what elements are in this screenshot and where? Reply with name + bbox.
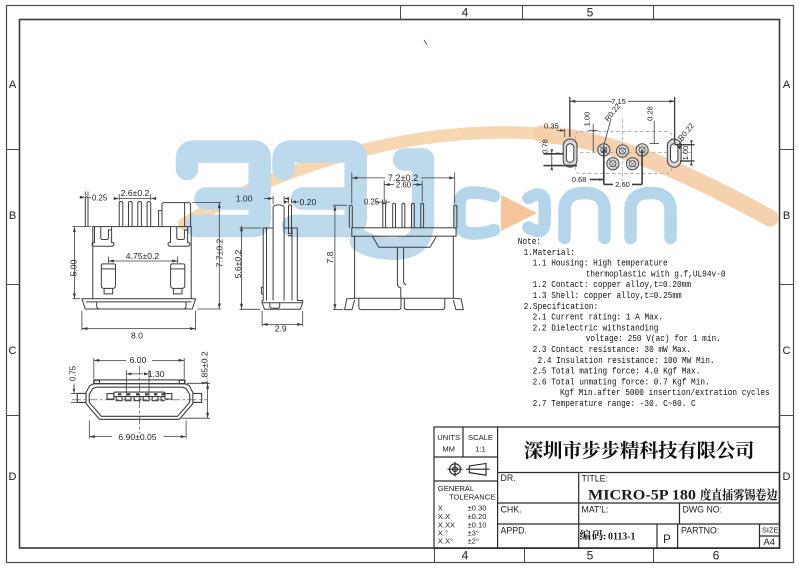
svg-text:B: B [783, 210, 790, 222]
svg-text:2.5 Total mating force: 4.0 Kg: 2.5 Total mating force: 4.0 Kgf Max. [533, 366, 701, 377]
svg-text:5: 5 [587, 549, 594, 563]
svg-text:1.30: 1.30 [148, 369, 165, 379]
svg-text:2.Specification:: 2.Specification: [524, 301, 599, 312]
svg-text:1.00: 1.00 [236, 193, 253, 203]
svg-text:0.35: 0.35 [544, 122, 559, 131]
svg-text:2.9: 2.9 [275, 324, 287, 334]
svg-text:D: D [783, 471, 791, 483]
svg-text:0.75: 0.75 [69, 365, 78, 381]
svg-text:4: 4 [462, 6, 469, 20]
svg-text:CHK.: CHK. [501, 505, 522, 515]
svg-text:DWG NO:: DWG NO: [683, 505, 723, 515]
svg-text:0.68: 0.68 [572, 175, 587, 184]
svg-text:0.25: 0.25 [364, 198, 380, 207]
svg-text:SIZE: SIZE [762, 526, 778, 535]
svg-text:1.2 Contact: copper alloy,t=0.: 1.2 Contact: copper alloy,t=0.20mm [533, 279, 692, 290]
svg-text:P: P [663, 534, 671, 546]
svg-text:2.7 Temperature range: -30. C~: 2.7 Temperature range: -30. C~80. C [533, 398, 696, 409]
svg-text:TOLERANCE: TOLERANCE [449, 493, 495, 502]
svg-text:8.0: 8.0 [131, 331, 143, 341]
svg-text:2.4 Insulation resistance: 100: 2.4 Insulation resistance: 100 MW Min. [538, 355, 715, 366]
svg-text:C: C [9, 345, 17, 357]
svg-text:6.00: 6.00 [130, 355, 147, 365]
svg-text:4: 4 [462, 549, 469, 563]
svg-text:±2°: ±2° [468, 537, 479, 546]
svg-text:1.Material:: 1.Material: [524, 247, 575, 258]
svg-text:TITLE:: TITLE: [582, 474, 608, 484]
svg-text:2.60: 2.60 [615, 180, 630, 189]
svg-text:1.00: 1.00 [583, 112, 592, 127]
svg-text:SCALE: SCALE [468, 433, 493, 442]
svg-text:5.00: 5.00 [69, 259, 79, 276]
svg-text:1.85±0.2: 1.85±0.2 [200, 351, 210, 385]
svg-text:UNITS: UNITS [437, 433, 460, 442]
svg-text:0.28: 0.28 [646, 106, 655, 121]
svg-text:7.7±0.2: 7.7±0.2 [215, 238, 225, 267]
svg-text:Kgf Min.after 5000 insertion/e: Kgf Min.after 5000 insertion/extration c… [560, 387, 770, 398]
svg-text:5.6±0.2: 5.6±0.2 [233, 249, 243, 278]
svg-text:0.25: 0.25 [92, 193, 108, 202]
svg-text:MM: MM [442, 445, 455, 454]
svg-text:5: 5 [587, 6, 594, 20]
svg-text:MAT'L:: MAT'L: [582, 505, 609, 515]
svg-text:2.60: 2.60 [396, 180, 412, 189]
svg-text:2.1 Current rating: 1 A Max.: 2.1 Current rating: 1 A Max. [533, 312, 664, 323]
svg-text:6.90±0.05: 6.90±0.05 [118, 432, 156, 442]
svg-text:0.78: 0.78 [541, 139, 550, 154]
svg-text:2.6 Total unmating force: 0.7: 2.6 Total unmating force: 0.7 Kgf Min. [533, 376, 710, 387]
svg-text:X.X°: X.X° [438, 537, 453, 546]
svg-text:7.8: 7.8 [325, 251, 335, 263]
svg-text:1.1 Housing: High temperature: 1.1 Housing: High temperature [533, 258, 668, 269]
svg-text::: : [603, 531, 607, 542]
svg-text:6: 6 [713, 549, 720, 563]
svg-text:2.2 Dielectric withstanding: 2.2 Dielectric withstanding [533, 322, 659, 333]
svg-text:0.20: 0.20 [300, 197, 317, 207]
svg-text:0113-1: 0113-1 [608, 531, 636, 542]
svg-text:A: A [9, 79, 17, 91]
svg-text:1.3 Shell: copper alloy,t=0.25: 1.3 Shell: copper alloy,t=0.25mm [533, 290, 682, 301]
svg-text:A4: A4 [764, 537, 775, 547]
svg-text:D: D [9, 471, 17, 483]
svg-text:C: C [783, 345, 791, 357]
svg-text:B: B [9, 210, 16, 222]
svg-text:DR.: DR. [501, 473, 516, 483]
svg-text:APPD.: APPD. [501, 526, 527, 536]
svg-text:1.00: 1.00 [681, 146, 690, 161]
svg-text:PARTNO:: PARTNO: [681, 526, 719, 536]
svg-text:thermoplastic with g.f,UL94v-0: thermoplastic with g.f,UL94v-0 [586, 268, 726, 279]
svg-text:MICRO-5P 180: MICRO-5P 180 [588, 488, 696, 504]
svg-text:2.6±0.2: 2.6±0.2 [121, 188, 150, 198]
svg-text:2.3 Contact resistance: 30 mW: 2.3 Contact resistance: 30 mW Max. [533, 344, 691, 355]
svg-text:4.75±0.2: 4.75±0.2 [126, 251, 160, 261]
svg-text:A: A [783, 79, 791, 91]
svg-text:voltage: 250 V(ac) for 1 min.: voltage: 250 V(ac) for 1 min. [586, 333, 721, 344]
svg-text:Note:: Note: [518, 236, 541, 247]
svg-text:1:1: 1:1 [475, 445, 486, 454]
